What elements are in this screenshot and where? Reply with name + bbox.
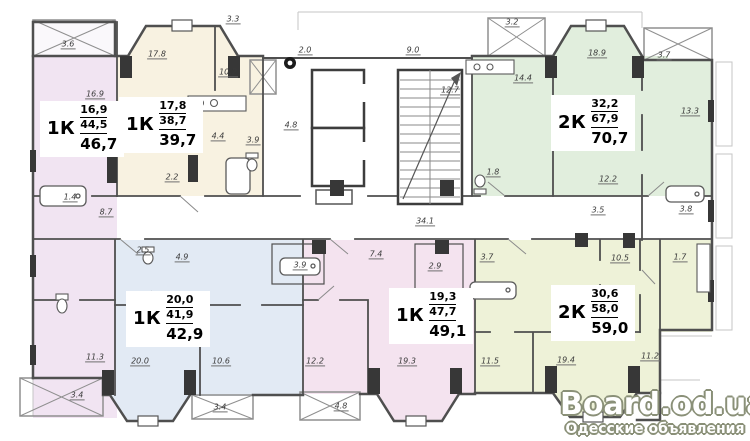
apartment-areas: 20,0 41,9 42,9 xyxy=(166,293,203,344)
apartment-areas: 16,9 44,5 46,7 xyxy=(80,103,117,154)
apartment-area-living: 17,8 xyxy=(159,99,186,114)
apartment-area-net: 41,9 xyxy=(166,308,193,323)
apartment-label-6: 2К 30,6 58,0 59,0 xyxy=(551,285,635,341)
watermark-title: Board.od.ua xyxy=(560,389,750,421)
apartment-type: 1К xyxy=(396,305,424,326)
apartment-areas: 17,8 38,7 39,7 xyxy=(159,99,196,150)
apartment-areas: 32,2 67,9 70,7 xyxy=(591,97,628,148)
apartment-label-2: 1К 17,8 38,7 39,7 xyxy=(119,97,203,153)
apartment-area-net: 58,0 xyxy=(591,302,618,317)
apartment-type: 1К xyxy=(133,308,161,329)
apartment-area-total: 70,7 xyxy=(591,128,628,148)
apartment-type: 2К xyxy=(558,112,586,133)
apartment-type: 1К xyxy=(126,114,154,135)
apartment-area-total: 42,9 xyxy=(166,324,203,344)
apartment-label-5: 1К 19,3 47,7 49,1 xyxy=(389,288,473,344)
watermark-subtitle: Одесские объявления xyxy=(560,421,750,437)
apartment-area-living: 32,2 xyxy=(591,97,618,112)
apartment-area-living: 19,3 xyxy=(429,290,456,305)
apartment-area-net: 44,5 xyxy=(80,118,107,133)
apartment-areas: 19,3 47,7 49,1 xyxy=(429,290,466,341)
apartment-area-living: 16,9 xyxy=(80,103,107,118)
watermark: Board.od.ua Одесские объявления xyxy=(560,389,750,438)
apartment-labels-layer: 1К 16,9 44,5 46,7 1К 17,8 38,7 39,7 2К 3… xyxy=(0,0,750,441)
apartment-area-total: 49,1 xyxy=(429,321,466,341)
apartment-area-net: 38,7 xyxy=(159,114,186,129)
apartment-label-4: 1К 20,0 41,9 42,9 xyxy=(126,291,210,347)
apartment-label-3: 2К 32,2 67,9 70,7 xyxy=(551,95,635,151)
apartment-area-total: 59,0 xyxy=(591,318,628,338)
apartment-areas: 30,6 58,0 59,0 xyxy=(591,287,628,338)
apartment-label-1: 1К 16,9 44,5 46,7 xyxy=(40,101,124,157)
floor-plan: 3.617.83.310.22.09.012.73.218.93.714.413… xyxy=(0,0,750,441)
apartment-area-total: 46,7 xyxy=(80,134,117,154)
apartment-area-net: 67,9 xyxy=(591,112,618,127)
apartment-type: 1К xyxy=(47,118,75,139)
apartment-type: 2К xyxy=(558,302,586,323)
apartment-area-living: 30,6 xyxy=(591,287,618,302)
apartment-area-total: 39,7 xyxy=(159,130,196,150)
apartment-area-net: 47,7 xyxy=(429,305,456,320)
apartment-area-living: 20,0 xyxy=(166,293,193,308)
